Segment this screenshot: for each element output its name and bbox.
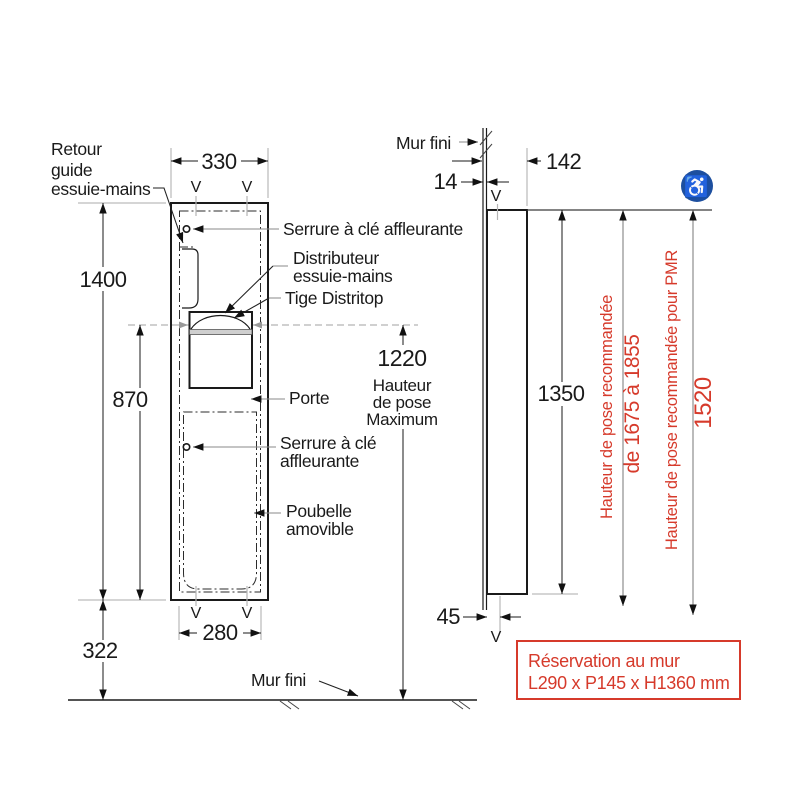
label-poubelle-2: amovible bbox=[286, 519, 354, 539]
label-porte: Porte bbox=[289, 388, 329, 408]
svg-text:280: 280 bbox=[202, 620, 237, 645]
svg-text:V: V bbox=[242, 179, 253, 196]
svg-text:1400: 1400 bbox=[80, 267, 127, 292]
label-mur-fini-top: Mur fini bbox=[396, 133, 451, 153]
spec-sheet-page: V V V V V V bbox=[0, 0, 800, 800]
label-mur-fini-bottom: Mur fini bbox=[251, 670, 306, 690]
label-retour-3: essuie-mains bbox=[51, 179, 151, 199]
label-serrure-bottom-1: Serrure à clé bbox=[280, 433, 376, 453]
svg-text:Maximum: Maximum bbox=[366, 410, 438, 429]
svg-text:V: V bbox=[191, 179, 202, 196]
dim-330: 330 bbox=[171, 149, 268, 174]
svg-text:1220: 1220 bbox=[377, 345, 426, 371]
svg-text:♿: ♿ bbox=[684, 174, 710, 199]
svg-text:V: V bbox=[191, 605, 202, 622]
side-unit-outline bbox=[487, 210, 527, 594]
note-hauteur-pmr-value: 1520 bbox=[690, 377, 717, 429]
note-hauteur-pmr: Hauteur de pose recommandée pour PMR bbox=[663, 250, 681, 550]
dim-870: 870 bbox=[104, 325, 156, 600]
note-hauteur-range: de 1675 à 1855 bbox=[621, 335, 644, 474]
dim-45: 45 bbox=[437, 604, 521, 629]
dim-1350: 1350 bbox=[535, 210, 587, 594]
svg-text:V: V bbox=[242, 605, 253, 622]
label-distributeur-1: Distributeur bbox=[293, 248, 379, 268]
label-distributeur-2: essuie-mains bbox=[293, 266, 393, 286]
svg-text:330: 330 bbox=[201, 149, 236, 174]
reservation-box: Réservation au mur L290 x P145 x H1360 m… bbox=[517, 641, 740, 699]
dim-142: 142 bbox=[452, 149, 581, 174]
svg-text:45: 45 bbox=[437, 604, 461, 629]
dim-280: 280 bbox=[179, 620, 261, 645]
svg-text:14: 14 bbox=[434, 169, 458, 194]
wheelchair-icon: ♿ bbox=[681, 170, 713, 202]
label-tige: Tige Distritop bbox=[285, 288, 383, 308]
red-notes: Hauteur de pose recommandée de 1675 à 18… bbox=[598, 250, 717, 550]
front-unit-outline bbox=[171, 203, 268, 600]
note-hauteur-recommandee: Hauteur de pose recommandée bbox=[598, 295, 616, 519]
label-retour-2: guide bbox=[51, 160, 92, 180]
reservation-line-2: L290 x P145 x H1360 mm bbox=[528, 673, 730, 693]
svg-text:870: 870 bbox=[112, 387, 147, 412]
technical-drawing: V V V V V V bbox=[0, 0, 800, 800]
label-serrure-top: Serrure à clé affleurante bbox=[283, 219, 463, 239]
svg-text:322: 322 bbox=[82, 638, 117, 663]
dim-322: 322 bbox=[76, 600, 124, 700]
dispenser-window bbox=[190, 312, 253, 388]
dispenser-slot-band bbox=[190, 330, 253, 335]
side-v-bottom: V bbox=[491, 629, 502, 646]
side-v-top: V bbox=[491, 188, 502, 205]
floor-line bbox=[68, 700, 477, 709]
reservation-line-1: Réservation au mur bbox=[528, 651, 680, 671]
dim-1220-pose-max: 1220 Hauteur de pose Maximum bbox=[366, 325, 438, 700]
label-serrure-bottom-2: affleurante bbox=[280, 451, 359, 471]
label-retour-1: Retour bbox=[51, 139, 102, 159]
leader-mur-fini-bottom bbox=[319, 681, 358, 696]
label-poubelle-1: Poubelle bbox=[286, 501, 352, 521]
svg-text:1350: 1350 bbox=[538, 381, 585, 406]
svg-text:142: 142 bbox=[546, 149, 581, 174]
